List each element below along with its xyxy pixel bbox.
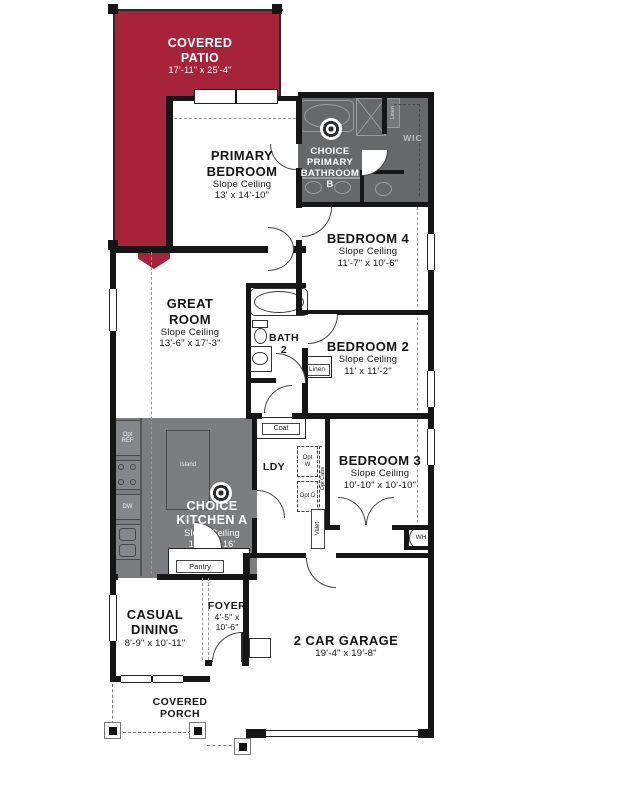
wall bbox=[404, 546, 434, 550]
opt-w-label: Opt W bbox=[300, 455, 316, 468]
room-label-kitchen: CHOICE KITCHEN A Slope Ceiling 14'-2" x … bbox=[152, 500, 272, 548]
room-dim: 11'-7" x 10'-6" bbox=[338, 258, 399, 269]
room-sub: Slope Ceiling bbox=[213, 179, 272, 190]
porch-post bbox=[189, 722, 206, 739]
room-sub: Slope Ceiling bbox=[339, 354, 398, 365]
room-label-foyer: FOYER 4'-5" x 10'-6" bbox=[196, 594, 258, 638]
coat-label-box: Coat bbox=[262, 423, 300, 435]
room-label-primary-bath: CHOICE PRIMARY BATHROOM B bbox=[291, 140, 369, 198]
wic-label: WIC bbox=[396, 134, 430, 143]
room-dim: 13'-6" x 17'-3" bbox=[159, 338, 220, 349]
window-mullion bbox=[235, 89, 237, 104]
room-name: CASUAL DINING bbox=[110, 607, 200, 638]
wall bbox=[382, 96, 387, 134]
porch-post bbox=[104, 722, 121, 739]
valet-bench: Valet bbox=[311, 509, 325, 549]
valet-label: Valet bbox=[315, 522, 321, 535]
room-label-bedroom3: BEDROOM 3 Slope Ceiling 10'-10" x 10'-10… bbox=[322, 450, 438, 494]
room-name: CHOICE KITCHEN A bbox=[172, 499, 252, 529]
room-label-bath2: BATH 2 bbox=[262, 330, 306, 358]
window bbox=[427, 234, 435, 270]
garage-door bbox=[266, 730, 418, 737]
dw-label: DW bbox=[123, 504, 133, 510]
choice-target-icon bbox=[320, 118, 342, 140]
room-label-covered-patio: COVERED PATIO 17'-11" x 25'-4" bbox=[130, 30, 270, 82]
wh-label: WH bbox=[416, 535, 427, 542]
room-sub: Slope Ceiling bbox=[339, 246, 398, 257]
range-stove bbox=[114, 460, 141, 490]
counter-edge bbox=[140, 418, 142, 576]
floor-plan: Linen Opt REF DW Island Coat Linen Pantr… bbox=[0, 0, 640, 803]
opt-washer: Opt W bbox=[297, 446, 318, 477]
porch-post-core bbox=[109, 727, 117, 735]
room-sub: Slope Ceiling bbox=[351, 468, 410, 479]
door-arc bbox=[268, 249, 294, 271]
wall bbox=[418, 729, 434, 738]
wall bbox=[292, 413, 434, 419]
room-name: FOYER bbox=[208, 600, 246, 612]
door-arc bbox=[338, 497, 366, 525]
room-sub: Slope Ceiling bbox=[184, 528, 240, 539]
room-label-casual-dining: CASUAL DINING 8'-9" x 10'-11" bbox=[102, 602, 208, 654]
opt-refrigerator: Opt REF bbox=[114, 420, 141, 456]
wall bbox=[246, 729, 266, 738]
pantry-label-box: Pantry bbox=[176, 560, 224, 573]
door-arc bbox=[306, 558, 336, 588]
porch-line bbox=[207, 745, 237, 746]
porch-line bbox=[123, 732, 191, 733]
door-arc bbox=[366, 497, 394, 525]
wall bbox=[205, 660, 212, 666]
porch-line bbox=[112, 684, 113, 724]
toilet-tank bbox=[252, 320, 268, 328]
room-label-bedroom2: BEDROOM 2 Slope Ceiling 11' x 11'-2" bbox=[308, 336, 428, 380]
room-label-porch: COVERED PORCH bbox=[128, 692, 232, 724]
room-dim: 4'-5" x 10'-6" bbox=[206, 612, 248, 632]
wall bbox=[404, 525, 409, 548]
kitchen-sink bbox=[114, 524, 141, 560]
sink-bowl bbox=[119, 528, 136, 541]
dishwasher: DW bbox=[114, 494, 141, 520]
linen-label: Linen bbox=[390, 106, 396, 119]
porch-post-core bbox=[239, 743, 247, 751]
patio-post bbox=[108, 4, 118, 14]
patio-edge bbox=[279, 9, 281, 97]
door-arc bbox=[268, 227, 294, 249]
wall bbox=[166, 96, 173, 251]
room-name: COVERED PATIO bbox=[155, 36, 245, 66]
wall bbox=[336, 553, 434, 558]
wall bbox=[252, 413, 257, 490]
wall bbox=[110, 676, 121, 682]
window bbox=[153, 675, 183, 683]
room-dim: 8'-9" x 10'-11" bbox=[125, 638, 186, 649]
porch-post bbox=[234, 738, 251, 755]
wall bbox=[325, 525, 340, 530]
room-dim: 17'-11" x 25'-4" bbox=[169, 65, 232, 76]
wall bbox=[183, 676, 210, 682]
room-name: COVERED PORCH bbox=[145, 696, 215, 721]
wic-shelf-line bbox=[394, 104, 420, 105]
room-name: BEDROOM 2 bbox=[327, 339, 409, 354]
linen-closet-bath: Linen bbox=[386, 98, 400, 128]
wall bbox=[246, 553, 306, 558]
patio-edge bbox=[113, 9, 115, 249]
wall bbox=[296, 240, 302, 315]
room-label-primary-bedroom: PRIMARY BEDROOM Slope Ceiling 13' x 14'-… bbox=[177, 146, 307, 204]
room-name: LDY bbox=[263, 461, 285, 473]
porch-post-core bbox=[194, 727, 202, 735]
room-label-bedroom4: BEDROOM 4 Slope Ceiling 11'-7" x 10'-6" bbox=[308, 228, 428, 272]
covered-patio-zone-side bbox=[115, 96, 171, 248]
room-label-garage: 2 CAR GARAGE 19'-4" x 19'-8" bbox=[276, 630, 416, 662]
island-label: Island bbox=[166, 462, 210, 468]
burner bbox=[130, 479, 136, 485]
coat-label: Coat bbox=[274, 425, 289, 432]
room-label-ldy: LDY bbox=[252, 458, 296, 476]
burner bbox=[130, 464, 136, 470]
room-name: BATH 2 bbox=[266, 332, 302, 357]
window bbox=[121, 675, 151, 683]
room-label-great-room: GREAT ROOM Slope Ceiling 13'-6" x 17'-3" bbox=[130, 294, 250, 352]
room-name: GREAT ROOM bbox=[148, 296, 233, 327]
wall bbox=[246, 378, 276, 383]
room-name: CHOICE PRIMARY BATHROOM B bbox=[298, 147, 362, 191]
wall bbox=[242, 660, 249, 666]
window bbox=[109, 289, 117, 331]
room-name: 2 CAR GARAGE bbox=[294, 633, 398, 648]
room-dim: 10'-10" x 10'-10" bbox=[344, 480, 416, 491]
burner bbox=[118, 464, 124, 470]
pantry-label: Pantry bbox=[189, 563, 211, 571]
opt-dryer: Opt D bbox=[297, 481, 318, 512]
wall bbox=[246, 283, 306, 288]
room-dim: 13' x 14'-10" bbox=[215, 190, 270, 201]
opt-d-label: Opt D bbox=[300, 493, 316, 499]
room-dim: 19'-4" x 19'-8" bbox=[315, 648, 376, 659]
door-arc bbox=[264, 385, 292, 413]
patio-post bbox=[272, 4, 282, 14]
patio-edge bbox=[113, 9, 283, 11]
toilet bbox=[375, 182, 392, 196]
wall bbox=[298, 92, 434, 98]
opt-ref-label: Opt REF bbox=[119, 432, 137, 445]
room-sub: Slope Ceiling bbox=[161, 327, 220, 338]
wall bbox=[296, 96, 302, 144]
room-name: BEDROOM 4 bbox=[327, 231, 409, 246]
room-name: BEDROOM 3 bbox=[339, 453, 421, 468]
room-dim: 11' x 11'-2" bbox=[344, 366, 392, 377]
burner bbox=[118, 479, 124, 485]
window bbox=[427, 371, 435, 407]
room-name: PRIMARY BEDROOM bbox=[187, 148, 297, 179]
ceiling-line bbox=[174, 118, 296, 119]
room-dim: 14'-2" x 16' bbox=[189, 539, 236, 550]
wall bbox=[110, 574, 118, 580]
patio-door-notch bbox=[138, 253, 170, 269]
sink-bowl bbox=[119, 544, 136, 557]
wall bbox=[157, 574, 257, 580]
wall bbox=[392, 525, 434, 530]
garage-step bbox=[249, 638, 271, 658]
wic-shelf-line bbox=[419, 104, 420, 196]
